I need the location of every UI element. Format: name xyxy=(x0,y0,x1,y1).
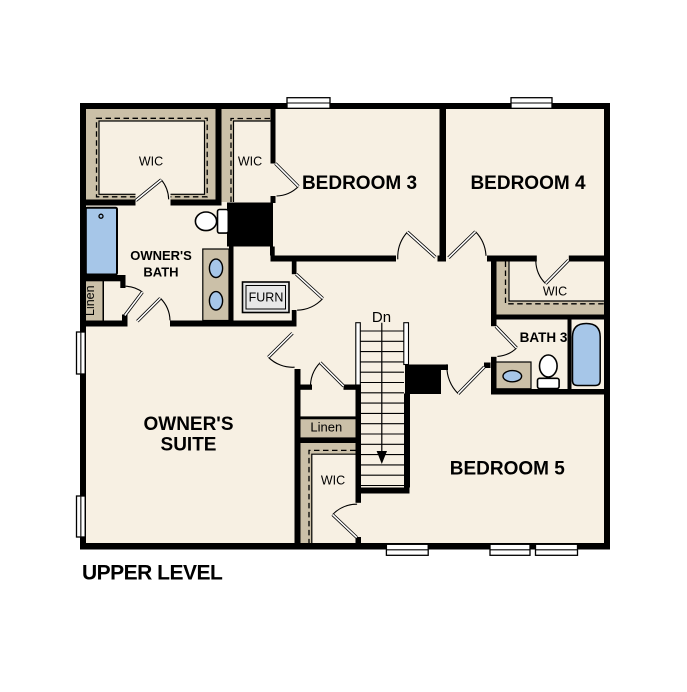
svg-text:WIC: WIC xyxy=(139,155,163,169)
svg-text:WIC: WIC xyxy=(238,155,262,169)
svg-text:BEDROOM 5: BEDROOM 5 xyxy=(450,459,566,480)
svg-text:BEDROOM 4: BEDROOM 4 xyxy=(470,173,586,194)
svg-text:Linen: Linen xyxy=(83,285,97,316)
svg-text:FURN: FURN xyxy=(249,291,284,305)
svg-text:BEDROOM 3: BEDROOM 3 xyxy=(302,173,417,194)
svg-text:BATH: BATH xyxy=(143,264,178,279)
svg-text:WIC: WIC xyxy=(543,284,567,298)
svg-text:WIC: WIC xyxy=(321,474,345,488)
svg-text:OWNER'S: OWNER'S xyxy=(130,248,192,263)
svg-text:SUITE: SUITE xyxy=(161,434,217,455)
svg-text:Linen: Linen xyxy=(310,419,342,434)
svg-text:Dn: Dn xyxy=(372,309,391,326)
svg-text:BATH 3: BATH 3 xyxy=(520,330,568,345)
svg-text:UPPER LEVEL: UPPER LEVEL xyxy=(82,562,223,585)
svg-text:OWNER'S: OWNER'S xyxy=(143,414,233,435)
